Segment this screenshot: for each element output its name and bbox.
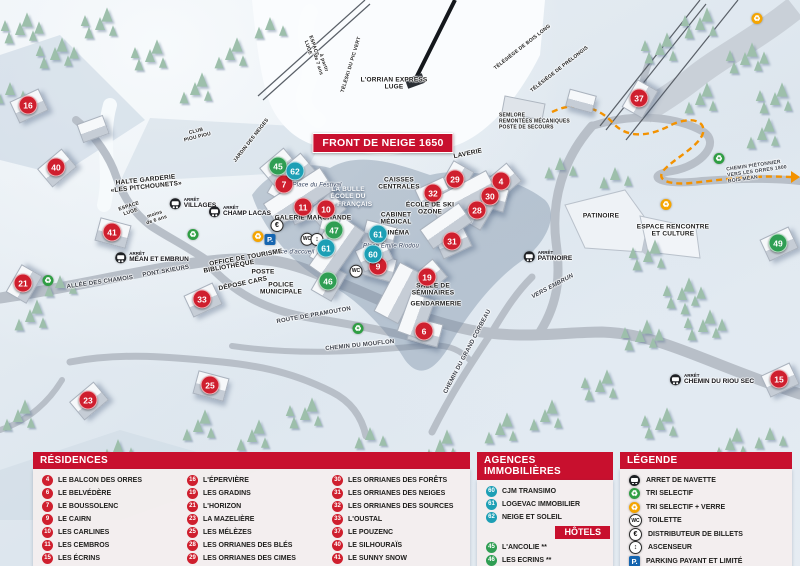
legende-item-icon: ↕ [629, 541, 642, 554]
map-marker-number: 28 [472, 205, 481, 215]
residence-number-badge: 28 [187, 540, 198, 551]
service-icon: ♻ [188, 224, 199, 242]
map-label: ESPACE RENCONTRE ET CULTURE [637, 224, 709, 239]
map-marker-number: 61 [321, 243, 330, 253]
residence-number-badge: 16 [187, 475, 198, 486]
service-icon: P. [265, 229, 276, 247]
front-de-neige-banner: FRONT DE NEIGE 1650 [312, 133, 453, 153]
legende-item-icon: ♻ [629, 488, 640, 499]
map-marker-number: 6 [422, 326, 427, 336]
residence-number-badge: 31 [332, 488, 343, 499]
map-marker-number: 62 [290, 166, 299, 176]
service-icon-glyph: ♻ [353, 323, 364, 334]
legende-item-label: PARKING PAYANT ET LIMITÉ [646, 558, 742, 565]
residence-number-badge: 33 [332, 514, 343, 525]
legende-list: ARRET DE NAVETTE ♻ TRI SELECTIF ♻ TRI SE… [620, 469, 792, 566]
map-marker: 37 [630, 89, 649, 108]
legende-item-label: TRI SELECTIF [646, 490, 693, 497]
residence-item: 21 L'HORIZON [181, 500, 322, 513]
map-marker: 19 [418, 268, 437, 287]
residence-name: LE BELVÉDÈRE [58, 490, 111, 497]
residence-name: LE CAIRN [58, 516, 91, 523]
map-marker: 23 [79, 391, 98, 410]
bus-stop: ARRÊT CHAMP LACAS [209, 206, 271, 218]
service-icon-glyph: P. [265, 234, 276, 245]
map-label: PATINOIRE [583, 212, 619, 219]
residence-item: 11 LES CEMBROS [36, 539, 177, 552]
agency-number-badge: 60 [486, 486, 497, 497]
map-marker: 46 [319, 272, 338, 291]
map-label: SEMLORE REMONTÉES MÉCANIQUES POSTE DE SE… [499, 113, 570, 130]
legende-item: ♻ TRI SELECTIF + VERRE [623, 501, 789, 515]
agency-item: 61 LOGEVAC IMMOBILIER [480, 498, 610, 511]
map-marker-number: 25 [205, 380, 214, 390]
residences-list: 4 LE BALCON DES ORRES 6 LE BELVÉDÈRE 7 L… [33, 469, 470, 566]
map-marker-number: 10 [321, 204, 330, 214]
map-marker-number: 40 [51, 162, 60, 172]
bus-stop-name: CHAMP LACAS [223, 211, 271, 218]
map-marker-number: 29 [450, 174, 459, 184]
map-marker-number: 19 [422, 272, 431, 282]
bus-stop: ARRÊT PATINOIRE [524, 251, 572, 263]
agencies-hotels-body: 60 CJM TRANSIMO 61 LOGEVAC IMMOBILIER 62… [477, 480, 613, 566]
bus-stop-name: MÉAN ET EMBRUN [129, 257, 189, 264]
residence-item: 4 LE BALCON DES ORRES [36, 474, 177, 487]
residence-number-badge: 25 [187, 527, 198, 538]
map-marker-number: 60 [368, 249, 377, 259]
residence-number-badge: 9 [42, 514, 53, 525]
bus-icon [524, 252, 535, 263]
legende-item: WC TOILETTE [623, 514, 789, 528]
service-icon: ♻ [353, 318, 364, 336]
service-icon: ♻ [43, 270, 54, 288]
map-marker-number: 32 [428, 188, 437, 198]
map-marker-number: 33 [197, 294, 206, 304]
map-marker: 33 [193, 290, 212, 309]
bus-icon [209, 207, 220, 218]
map-label: CAISSES CENTRALES [378, 177, 420, 192]
map-marker: 45 [269, 157, 288, 176]
agency-name: CJM TRANSIMO [502, 488, 556, 495]
residence-name: LES CEMBROS [58, 542, 109, 549]
residence-item: 10 LES CARLINES [36, 526, 177, 539]
map-label: ÉCOLE DE SKI OZONE [406, 202, 454, 217]
legende-item-icon: € [629, 528, 642, 541]
legende-item-label: DISTRIBUTEUR DE BILLETS [648, 531, 743, 538]
residence-name: LES ORRIANES DES BLÉS [203, 542, 292, 549]
residence-name: LES ÉCRINS [58, 555, 100, 562]
agency-name: NEIGE ET SOLEIL [502, 514, 562, 521]
legende-item: ↕ ASCENSEUR [623, 541, 789, 555]
map-marker-number: 11 [299, 202, 308, 212]
service-icon-glyph: ♻ [714, 153, 725, 164]
service-icon-glyph: ♻ [661, 199, 672, 210]
map-marker-number: 21 [18, 278, 27, 288]
residence-item: 23 LA MAZELIÈRE [181, 513, 322, 526]
bus-stop: ARRÊT CHEMIN DU RIOU SEC [670, 374, 754, 386]
map-marker-number: 7 [282, 179, 287, 189]
hotel-number-badge: 46 [486, 555, 497, 566]
residence-name: L'OUSTAL [348, 516, 382, 523]
residence-number-badge: 29 [187, 553, 198, 564]
service-icon: WC [350, 259, 363, 278]
agency-number-badge: 62 [486, 512, 497, 523]
map-marker: 25 [201, 376, 220, 395]
legende-item-label: TOILETTE [648, 517, 682, 524]
residence-number-badge: 32 [332, 501, 343, 512]
legende-item-icon: WC [629, 514, 642, 527]
bus-icon [170, 199, 181, 210]
service-icon: ♻ [714, 148, 725, 166]
map-marker-number: 30 [485, 191, 494, 201]
legende-item: ARRET DE NAVETTE [623, 474, 789, 488]
map-label: POLICE MUNICIPALE [260, 282, 302, 297]
map-marker-number: 45 [273, 161, 282, 171]
bus-icon [670, 375, 681, 386]
map-marker-number: 46 [323, 276, 332, 286]
residence-item: 33 L'OUSTAL [326, 513, 467, 526]
legende-item: € DISTRIBUTEUR DE BILLETS [623, 528, 789, 542]
hotel-item: 45 L'ANCOLIE ** [480, 541, 610, 554]
map-label: Place du Festival [292, 183, 341, 190]
residence-name: LES CARLINES [58, 529, 109, 536]
residence-number-badge: 15 [42, 553, 53, 564]
map-marker-number: 4 [499, 176, 504, 186]
map-marker: 6 [415, 322, 434, 341]
map-marker-number: 16 [23, 100, 32, 110]
residence-name: LE BALCON DES ORRES [58, 477, 142, 484]
hotels-title: HÔTELS [555, 526, 610, 539]
map-marker-number: 47 [329, 225, 338, 235]
residence-number-badge: 40 [332, 540, 343, 551]
residence-number-badge: 4 [42, 475, 53, 486]
residence-item: 31 LES ORRIANES DES NEIGES [326, 487, 467, 500]
map-marker: 41 [103, 223, 122, 242]
hotels-header: HÔTELS [480, 526, 610, 539]
legende-item: P. PARKING PAYANT ET LIMITÉ [623, 555, 789, 566]
residence-item: 32 LES ORRIANES DES SOURCES [326, 500, 467, 513]
resort-map: FRONT DE NEIGE 1650 16 40 41 21 33 23 25… [0, 0, 800, 566]
hotel-name: LES ECRINS ** [502, 557, 551, 564]
residence-number-badge: 6 [42, 488, 53, 499]
map-marker: 16 [19, 96, 38, 115]
legende-item-label: ASCENSEUR [648, 544, 692, 551]
service-icon-glyph: ♻ [752, 13, 763, 24]
residence-number-badge: 23 [187, 514, 198, 525]
legende-item: ♻ TRI SELECTIF [623, 487, 789, 501]
residence-name: LE SUNNY SNOW [348, 555, 407, 562]
agency-item: 60 CJM TRANSIMO [480, 485, 610, 498]
map-marker: 60 [364, 245, 383, 264]
residence-name: LE BOUSSOLENC [58, 503, 118, 510]
legend-panel-residences: RÉSIDENCES 4 LE BALCON DES ORRES 6 LE BE… [33, 452, 470, 566]
service-icon: ♻ [752, 8, 763, 26]
bus-stop-text: ARRÊT CHEMIN DU RIOU SEC [684, 374, 754, 386]
residence-name: LES ORRIANES DES SOURCES [348, 503, 453, 510]
bus-stop-name: CHEMIN DU RIOU SEC [684, 379, 754, 386]
legende-title: LÉGENDE [620, 452, 792, 469]
map-marker: 61 [317, 239, 336, 258]
map-marker: 11 [294, 198, 313, 217]
residence-name: L'ÉPERVIÈRE [203, 477, 249, 484]
residence-item: 6 LE BELVÉDÈRE [36, 487, 177, 500]
agency-item: 62 NEIGE ET SOLEIL [480, 511, 610, 524]
residence-name: LA MAZELIÈRE [203, 516, 254, 523]
service-icon-glyph: WC [350, 264, 363, 277]
agencies-list: 60 CJM TRANSIMO 61 LOGEVAC IMMOBILIER 62… [480, 485, 610, 524]
map-marker: 61 [369, 225, 388, 244]
residence-item: 16 L'ÉPERVIÈRE [181, 474, 322, 487]
residence-name: LES ORRIANES DES FORÊTS [348, 477, 447, 484]
legend-panel-legende: LÉGENDE ARRET DE NAVETTE ♻ TRI SELECTIF … [620, 452, 792, 566]
residence-number-badge: 7 [42, 501, 53, 512]
map-label: GENDARMERIE [411, 300, 462, 307]
residence-item: 7 LE BOUSSOLENC [36, 500, 177, 513]
map-marker: 31 [443, 232, 462, 251]
residence-name: LES GRADINS [203, 490, 251, 497]
residence-item: 29 LES ORRIANES DES CIMES [181, 552, 322, 565]
map-marker-number: 31 [447, 236, 456, 246]
map-marker: 62 [286, 162, 305, 181]
service-icon-glyph: ♻ [188, 229, 199, 240]
map-marker-number: 15 [774, 374, 783, 384]
service-icon-glyph: ♻ [43, 275, 54, 286]
legende-item-icon [629, 475, 640, 486]
map-label: GALERIE MARCHANDE [275, 214, 352, 221]
residence-item: 37 LE POUZENC [326, 526, 467, 539]
map-label: SALLE DE SÉMINAIRES [412, 283, 454, 298]
residence-item: 9 LE CAIRN [36, 513, 177, 526]
map-marker-number: 49 [773, 238, 782, 248]
residence-item: 40 LE SILHOURAÏS [326, 539, 467, 552]
map-label: POSTE [251, 268, 274, 275]
residence-name: L'HORIZON [203, 503, 241, 510]
residence-number-badge: 30 [332, 475, 343, 486]
service-icon: ♻ [661, 194, 672, 212]
service-icon-glyph: ♻ [253, 231, 264, 242]
residence-item: 15 LES ÉCRINS [36, 552, 177, 565]
hotels-list: 45 L'ANCOLIE ** 46 LES ECRINS ** 47 L'ES… [480, 541, 610, 566]
map-marker: 40 [47, 158, 66, 177]
legende-item-icon: ♻ [629, 502, 640, 513]
bus-stop-text: ARRÊT MÉAN ET EMBRUN [129, 252, 189, 264]
legende-item-label: TRI SELECTIF + VERRE [646, 504, 725, 511]
residence-item: 19 LES GRADINS [181, 487, 322, 500]
residence-name: LES ORRIANES DES CIMES [203, 555, 296, 562]
map-marker: 49 [769, 234, 788, 253]
residence-item: 25 LES MÉLÈZES [181, 526, 322, 539]
agency-number-badge: 61 [486, 499, 497, 510]
residence-name: LES ORRIANES DES NEIGES [348, 490, 445, 497]
map-marker: 47 [325, 221, 344, 240]
residence-number-badge: 19 [187, 488, 198, 499]
residence-number-badge: 41 [332, 553, 343, 564]
hotel-name: L'ANCOLIE ** [502, 544, 547, 551]
map-marker: 29 [446, 170, 465, 189]
bus-stop-name: PATINOIRE [538, 256, 572, 263]
map-marker: 28 [468, 201, 487, 220]
bus-stop-text: ARRÊT CHAMP LACAS [223, 206, 271, 218]
map-marker-number: 23 [83, 395, 92, 405]
map-marker: 32 [424, 184, 443, 203]
bus-stop-text: ARRÊT PATINOIRE [538, 251, 572, 263]
map-marker: 15 [770, 370, 789, 389]
map-marker-number: 61 [373, 229, 382, 239]
map-label: L'ORRIAN EXPRESS LUGE [361, 77, 428, 92]
bus-stop: ARRÊT MÉAN ET EMBRUN [115, 252, 189, 264]
map-marker-number: 41 [107, 227, 116, 237]
legende-item-icon: P. [629, 556, 640, 566]
residence-item: 28 LES ORRIANES DES BLÉS [181, 539, 322, 552]
agency-name: LOGEVAC IMMOBILIER [502, 501, 580, 508]
residence-name: LES MÉLÈZES [203, 529, 252, 536]
hotel-item: 46 LES ECRINS ** [480, 554, 610, 566]
residence-number-badge: 10 [42, 527, 53, 538]
residences-title: RÉSIDENCES [33, 452, 470, 469]
residence-name: LE SILHOURAÏS [348, 542, 402, 549]
residence-number-badge: 11 [42, 540, 53, 551]
residence-number-badge: 37 [332, 527, 343, 538]
residence-number-badge: 21 [187, 501, 198, 512]
legende-item-label: ARRET DE NAVETTE [646, 477, 716, 484]
map-marker: 10 [317, 200, 336, 219]
residence-item: 41 LE SUNNY SNOW [326, 552, 467, 565]
bus-icon [115, 253, 126, 264]
service-icon: ♻ [253, 226, 264, 244]
residence-item: 30 LES ORRIANES DES FORÊTS [326, 474, 467, 487]
residence-name: LE POUZENC [348, 529, 393, 536]
legend-panel-agencies-hotels: AGENCES IMMOBILIÈRES 60 CJM TRANSIMO 61 … [477, 452, 613, 566]
map-marker-number: 37 [634, 93, 643, 103]
map-marker: 21 [14, 274, 33, 293]
hotel-number-badge: 45 [486, 542, 497, 553]
agencies-title: AGENCES IMMOBILIÈRES [477, 452, 613, 480]
